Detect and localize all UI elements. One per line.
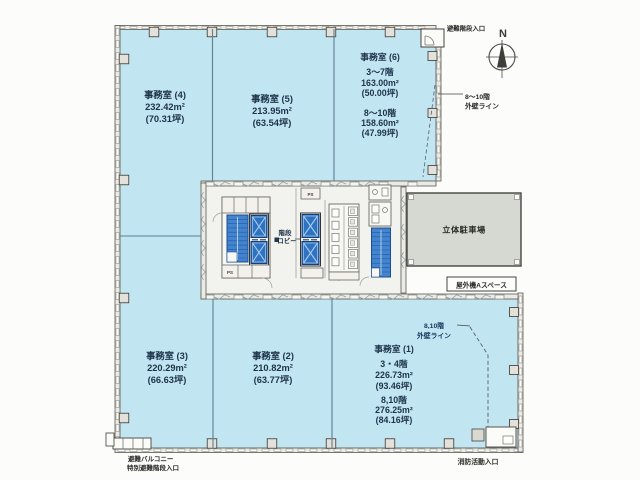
svg-text:8,10階: 8,10階 xyxy=(424,321,444,330)
svg-text:立体駐車場: 立体駐車場 xyxy=(442,225,486,235)
svg-text:(63.77坪): (63.77坪) xyxy=(254,374,293,385)
svg-text:(66.63坪): (66.63坪) xyxy=(148,374,187,385)
svg-text:(50.00坪): (50.00坪) xyxy=(362,87,399,98)
svg-text:(84.16坪): (84.16坪) xyxy=(376,414,413,425)
svg-text:210.82m²: 210.82m² xyxy=(253,363,293,373)
svg-text:事務室 (4): 事務室 (4) xyxy=(144,89,186,100)
svg-text:220.29m²: 220.29m² xyxy=(147,363,187,373)
svg-text:232.42m²: 232.42m² xyxy=(145,102,185,112)
svg-text:PS: PS xyxy=(307,192,313,197)
svg-text:特別避難階段入口: 特別避難階段入口 xyxy=(127,463,179,472)
svg-text:(93.46坪): (93.46坪) xyxy=(376,380,413,391)
svg-text:事務室 (5): 事務室 (5) xyxy=(251,93,293,104)
svg-text:3・4階: 3・4階 xyxy=(380,358,408,369)
svg-text:屋外機Aスペース: 屋外機Aスペース xyxy=(456,281,507,290)
svg-text:8～10階: 8～10階 xyxy=(465,92,490,101)
svg-text:(70.31坪): (70.31坪) xyxy=(146,113,185,124)
svg-text:避難階段入口: 避難階段入口 xyxy=(447,24,485,33)
svg-text:外壁ライン: 外壁ライン xyxy=(417,331,451,340)
svg-text:事務室 (6): 事務室 (6) xyxy=(360,51,400,62)
svg-text:276.25m²: 276.25m² xyxy=(375,405,413,415)
svg-text:事務室 (3): 事務室 (3) xyxy=(146,350,188,361)
svg-text:ロビー: ロビー xyxy=(277,236,297,245)
svg-text:158.60m²: 158.60m² xyxy=(361,118,399,128)
svg-text:163.00m²: 163.00m² xyxy=(361,78,399,88)
svg-text:3～7階: 3～7階 xyxy=(366,66,394,77)
svg-text:外壁ライン: 外壁ライン xyxy=(465,102,499,111)
svg-text:(47.99坪): (47.99坪) xyxy=(362,127,399,138)
svg-text:8～10階: 8～10階 xyxy=(364,107,396,118)
svg-text:213.95m²: 213.95m² xyxy=(252,106,292,116)
svg-text:事務室 (1): 事務室 (1) xyxy=(374,343,414,354)
svg-text:階段: 階段 xyxy=(279,228,293,237)
svg-text:8,10階: 8,10階 xyxy=(381,394,407,405)
svg-text:PS: PS xyxy=(227,270,233,275)
svg-text:事務室 (2): 事務室 (2) xyxy=(252,350,294,361)
svg-text:N: N xyxy=(499,28,507,40)
svg-text:226.73m²: 226.73m² xyxy=(375,370,413,380)
svg-text:避難バルコニー: 避難バルコニー xyxy=(127,454,173,463)
svg-text:(63.54坪): (63.54坪) xyxy=(253,117,292,128)
svg-text:消防活動入口: 消防活動入口 xyxy=(458,457,499,466)
